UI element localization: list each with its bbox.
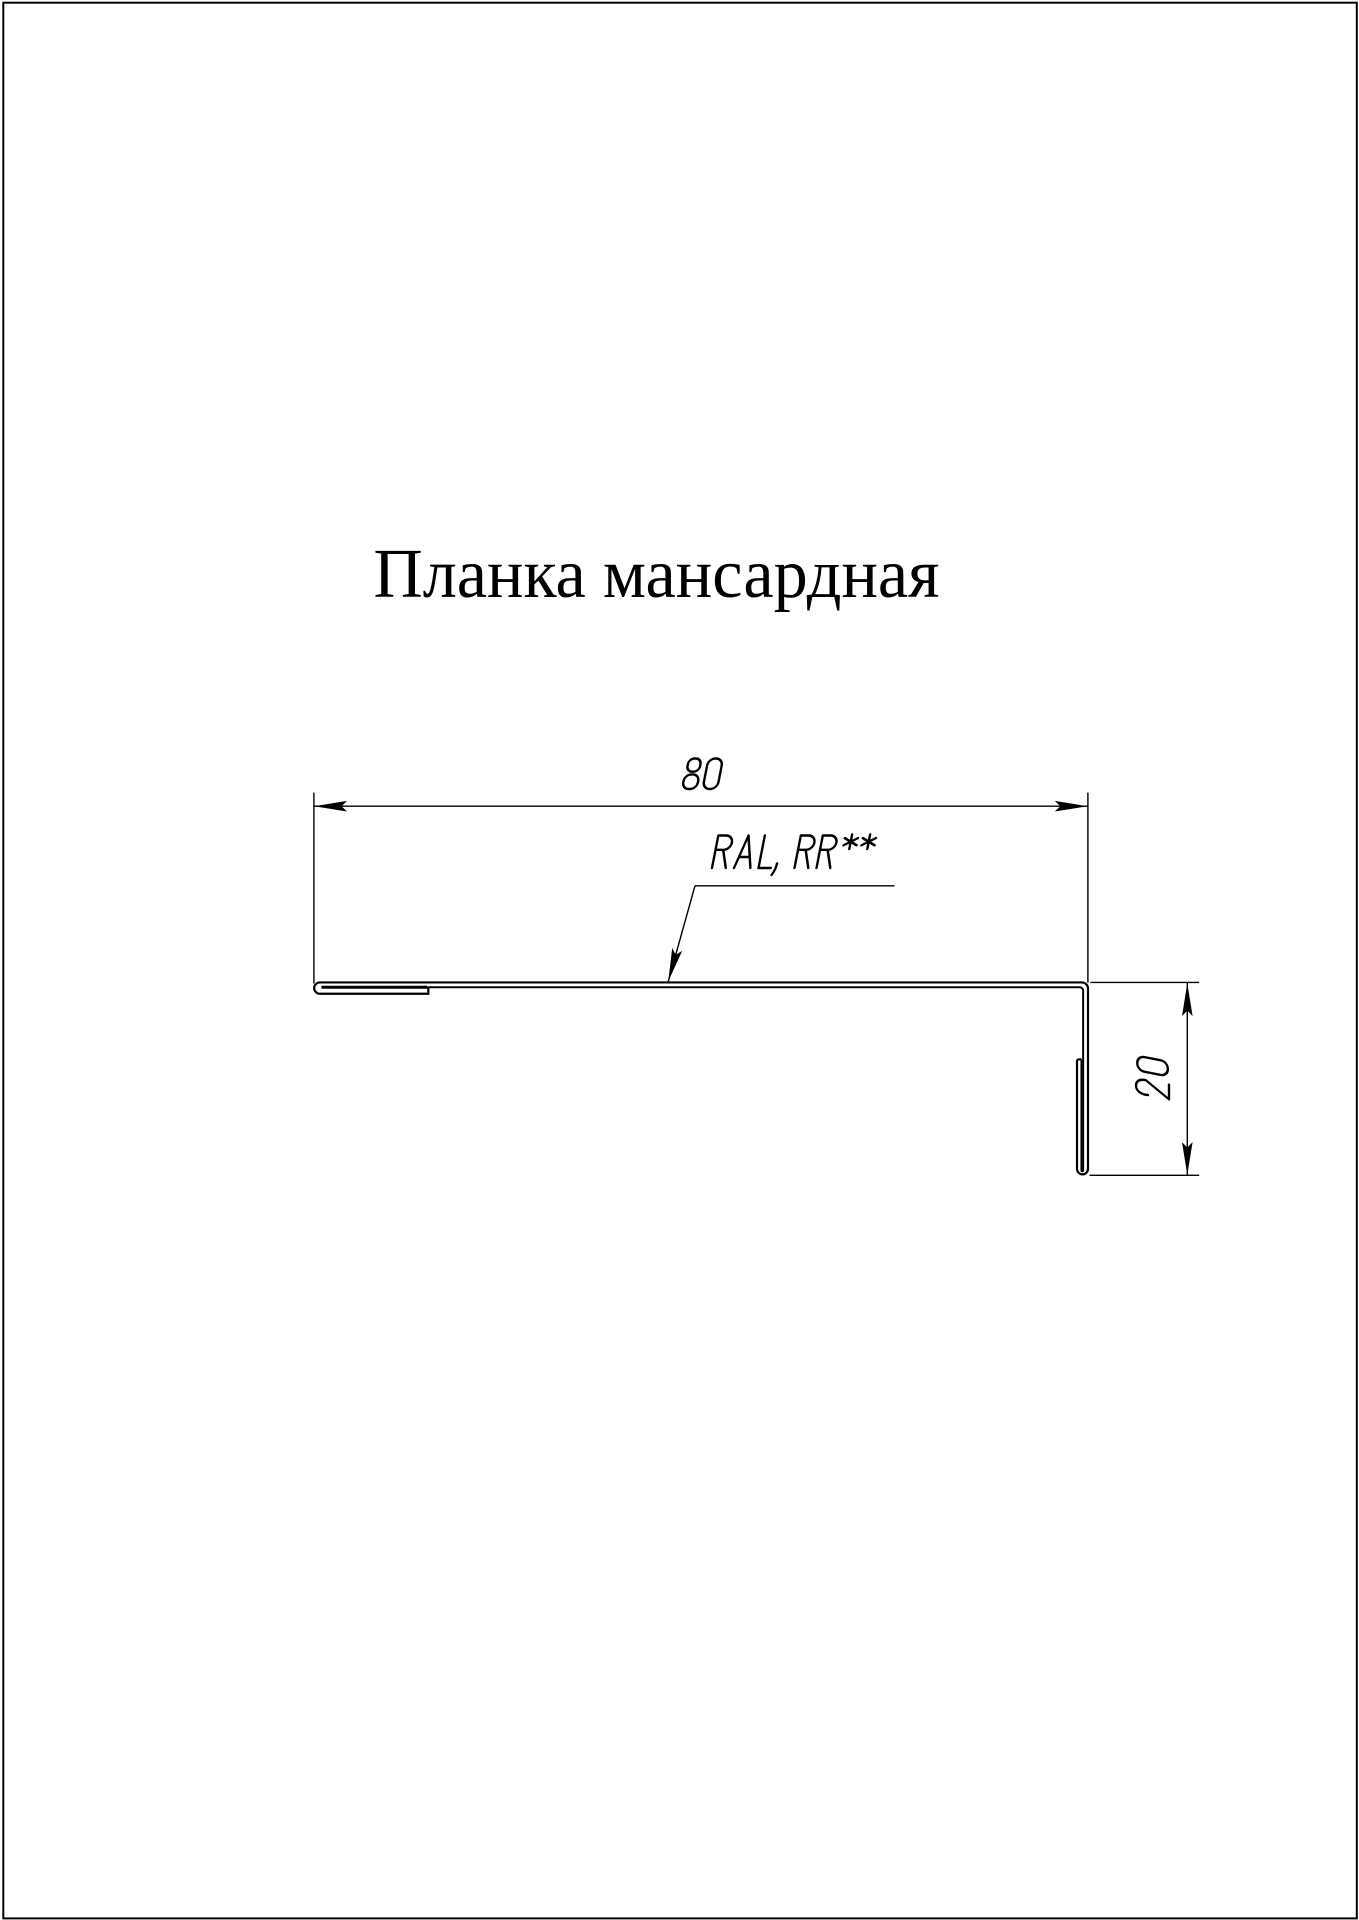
svg-text:Планка мансардная: Планка мансардная: [373, 534, 939, 612]
